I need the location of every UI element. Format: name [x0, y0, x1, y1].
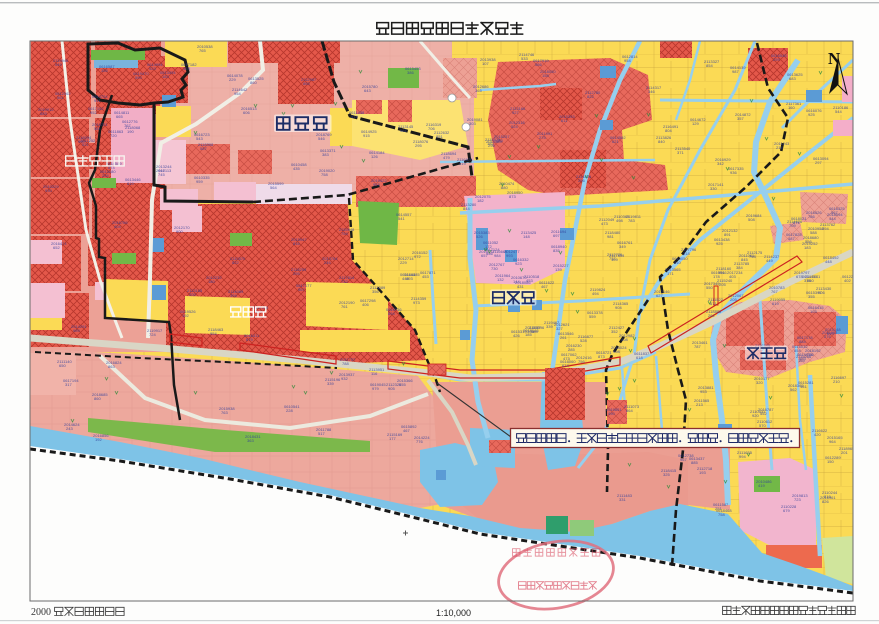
svg-text:549: 549 [55, 62, 62, 67]
svg-text:126: 126 [371, 154, 378, 159]
svg-text:776: 776 [416, 439, 423, 444]
svg-text:819: 819 [127, 181, 134, 186]
svg-text:448: 448 [825, 259, 832, 264]
svg-text:275: 275 [539, 135, 546, 140]
svg-text:533: 533 [521, 56, 528, 61]
svg-text:979: 979 [372, 386, 379, 391]
svg-text:259: 259 [773, 57, 780, 62]
svg-text:788: 788 [342, 361, 349, 366]
svg-text:954: 954 [234, 91, 241, 96]
svg-text:201: 201 [841, 450, 848, 455]
svg-text:183: 183 [804, 245, 811, 250]
svg-text:550: 550 [706, 285, 713, 290]
svg-text:363: 363 [247, 438, 254, 443]
svg-text:490: 490 [608, 411, 615, 416]
svg-text:679: 679 [783, 508, 790, 513]
svg-text:765: 765 [199, 48, 206, 53]
svg-text:941: 941 [94, 98, 101, 103]
svg-text:587: 587 [200, 146, 207, 151]
svg-text:325: 325 [663, 472, 670, 477]
svg-text:925: 925 [808, 112, 815, 117]
svg-text:923: 923 [515, 261, 522, 266]
svg-text:555: 555 [399, 382, 406, 387]
svg-text:444: 444 [829, 216, 836, 221]
svg-text:180: 180 [208, 279, 215, 284]
svg-text:590: 590 [135, 75, 142, 80]
svg-text:581: 581 [94, 126, 101, 131]
svg-text:804: 804 [665, 128, 672, 133]
svg-text:178: 178 [713, 274, 720, 279]
svg-text:317: 317 [65, 382, 72, 387]
svg-text:920: 920 [752, 413, 759, 418]
svg-text:479: 479 [443, 155, 450, 160]
svg-text:566: 566 [535, 62, 542, 67]
svg-text:210: 210 [833, 379, 840, 384]
svg-text:183: 183 [162, 74, 169, 79]
svg-text:218: 218 [776, 145, 783, 150]
svg-text:697: 697 [553, 233, 560, 238]
svg-text:330: 330 [710, 186, 717, 191]
svg-text:228: 228 [286, 408, 293, 413]
svg-text:192: 192 [182, 313, 189, 318]
svg-text:229: 229 [400, 260, 407, 265]
svg-text:925: 925 [716, 241, 723, 246]
svg-text:756: 756 [578, 359, 585, 364]
svg-text:989: 989 [73, 328, 80, 333]
svg-text:303: 303 [469, 121, 476, 126]
svg-text:205: 205 [730, 297, 737, 302]
svg-text:952: 952 [90, 110, 97, 115]
svg-text:402: 402 [844, 278, 851, 283]
svg-text:261: 261 [560, 335, 567, 340]
svg-text:435: 435 [293, 166, 300, 171]
svg-text:559: 559 [589, 314, 596, 319]
svg-text:748: 748 [749, 254, 756, 259]
svg-text:953: 953 [700, 389, 707, 394]
svg-text:927: 927 [512, 110, 519, 115]
svg-text:103: 103 [810, 309, 817, 314]
svg-text:116: 116 [371, 371, 378, 376]
svg-text:467: 467 [541, 284, 548, 289]
svg-text:678: 678 [796, 274, 803, 279]
svg-text:449: 449 [766, 258, 773, 263]
svg-text:885: 885 [691, 460, 698, 465]
svg-text:246: 246 [324, 260, 331, 265]
svg-text:906: 906 [818, 290, 825, 295]
svg-text:723: 723 [794, 497, 801, 502]
svg-text:873: 873 [598, 354, 605, 359]
svg-text:193: 193 [699, 470, 706, 475]
svg-text:139: 139 [555, 267, 562, 272]
svg-text:171: 171 [667, 271, 674, 276]
svg-text:383: 383 [322, 152, 329, 157]
svg-text:355: 355 [808, 294, 815, 299]
svg-text:541: 541 [398, 216, 405, 221]
svg-text:262: 262 [708, 313, 715, 318]
svg-text:349: 349 [619, 244, 626, 249]
svg-text:339: 339 [546, 324, 553, 329]
svg-text:730: 730 [491, 266, 498, 271]
svg-text:724: 724 [149, 332, 156, 337]
svg-text:426: 426 [513, 333, 520, 338]
svg-text:182: 182 [477, 198, 484, 203]
svg-text:107: 107 [482, 61, 489, 66]
svg-text:745: 745 [158, 172, 165, 177]
svg-text:356: 356 [101, 68, 108, 73]
svg-text:320: 320 [756, 380, 763, 385]
svg-text:786: 786 [807, 352, 814, 357]
svg-text:994: 994 [739, 454, 746, 459]
svg-text:816: 816 [293, 241, 300, 246]
svg-text:614: 614 [562, 363, 569, 368]
svg-text:419: 419 [758, 483, 765, 488]
svg-text:960: 960 [807, 278, 814, 283]
svg-text:845: 845 [741, 257, 748, 262]
svg-text:860: 860 [250, 80, 257, 85]
svg-text:148: 148 [523, 234, 530, 239]
svg-text:129: 129 [692, 121, 699, 126]
svg-text:528: 528 [580, 338, 587, 343]
svg-text:200: 200 [189, 292, 196, 297]
svg-text:758: 758 [321, 172, 328, 177]
svg-text:561: 561 [400, 128, 407, 133]
svg-text:346: 346 [648, 89, 655, 94]
svg-text:618: 618 [636, 355, 643, 360]
svg-text:543: 543 [196, 136, 203, 141]
svg-text:356: 356 [372, 289, 379, 294]
svg-text:297: 297 [815, 160, 822, 165]
svg-text:987: 987 [732, 69, 739, 74]
svg-text:904: 904 [615, 305, 622, 310]
svg-text:822: 822 [232, 260, 239, 265]
svg-text:863: 863 [108, 364, 115, 369]
svg-text:213: 213 [696, 402, 703, 407]
svg-text:404: 404 [114, 224, 121, 229]
svg-text:420: 420 [814, 432, 821, 437]
svg-text:386: 386 [407, 70, 414, 75]
svg-text:693: 693 [406, 276, 413, 281]
svg-text:754: 754 [341, 231, 348, 236]
svg-text:526: 526 [476, 234, 483, 239]
svg-text:182: 182 [487, 141, 494, 146]
svg-text:243: 243 [66, 426, 73, 431]
svg-text:919: 919 [459, 161, 466, 166]
svg-text:930: 930 [45, 188, 52, 193]
svg-text:621: 621 [612, 139, 619, 144]
svg-text:873: 873 [509, 194, 516, 199]
svg-text:932: 932 [341, 376, 348, 381]
svg-text:510: 510 [674, 260, 681, 265]
svg-text:229: 229 [229, 77, 236, 82]
svg-text:205: 205 [719, 282, 726, 287]
svg-text:508: 508 [748, 217, 755, 222]
svg-text:N: N [828, 49, 841, 68]
svg-text:234: 234 [102, 173, 109, 178]
svg-text:952: 952 [373, 182, 380, 187]
svg-text:998: 998 [613, 349, 620, 354]
svg-text:296: 296 [578, 178, 585, 183]
svg-text:923: 923 [149, 66, 156, 71]
svg-text:967: 967 [680, 457, 687, 462]
svg-text:891: 891 [724, 232, 731, 237]
svg-text:959: 959 [196, 179, 203, 184]
svg-text:498: 498 [616, 218, 623, 223]
svg-text:864: 864 [626, 408, 633, 413]
svg-text:860: 860 [94, 396, 101, 401]
svg-text:611: 611 [561, 118, 568, 123]
svg-text:371: 371 [677, 150, 684, 155]
svg-text:493: 493 [799, 356, 806, 361]
svg-text:192: 192 [95, 437, 102, 442]
svg-text:720: 720 [110, 133, 117, 138]
svg-text:865: 865 [303, 81, 310, 86]
svg-text:546: 546 [318, 136, 325, 141]
svg-text:276: 276 [824, 334, 831, 339]
svg-text:544: 544 [835, 109, 842, 114]
svg-text:972: 972 [414, 254, 421, 259]
svg-text:936: 936 [730, 170, 737, 175]
svg-text:900: 900 [176, 229, 183, 234]
svg-text:786: 786 [808, 214, 815, 219]
svg-text:160: 160 [788, 105, 795, 110]
svg-text:467: 467 [403, 428, 410, 433]
svg-text:709: 709 [789, 223, 796, 228]
svg-text:352: 352 [611, 329, 618, 334]
svg-text:562: 562 [790, 387, 797, 392]
svg-text:2000: 2000 [31, 607, 51, 618]
svg-text:826: 826 [822, 499, 829, 504]
svg-text:915: 915 [363, 133, 370, 138]
svg-text:650: 650 [59, 363, 66, 368]
svg-text:840: 840 [658, 139, 665, 144]
svg-text:431: 431 [517, 284, 524, 289]
svg-text:767: 767 [771, 289, 778, 294]
svg-text:643: 643 [364, 88, 371, 93]
svg-text:851: 851 [436, 134, 443, 139]
svg-text:567: 567 [298, 287, 305, 292]
svg-text:990: 990 [78, 139, 85, 144]
svg-text:144: 144 [513, 279, 520, 284]
svg-text:732: 732 [341, 279, 348, 284]
svg-text:973: 973 [413, 300, 420, 305]
svg-text:177: 177 [389, 436, 396, 441]
svg-text:342: 342 [717, 161, 724, 166]
svg-text:981: 981 [607, 234, 614, 239]
svg-text:487: 487 [788, 236, 795, 241]
svg-text:295: 295 [415, 143, 422, 148]
svg-text:619: 619 [772, 301, 779, 306]
svg-text:822: 822 [587, 94, 594, 99]
svg-text:606: 606 [243, 110, 250, 115]
svg-text:132: 132 [497, 277, 504, 282]
svg-text:758: 758 [718, 512, 725, 517]
svg-text:318: 318 [683, 251, 690, 256]
svg-text:964: 964 [829, 439, 836, 444]
svg-text:894: 894 [388, 311, 395, 316]
svg-text:671: 671 [710, 301, 717, 306]
svg-text:652: 652 [53, 245, 60, 250]
svg-text:406: 406 [362, 302, 369, 307]
svg-text:954: 954 [210, 331, 217, 336]
svg-text:761: 761 [341, 304, 348, 309]
svg-text:984: 984 [494, 253, 501, 258]
svg-text:150: 150 [827, 459, 834, 464]
svg-text:883: 883 [40, 111, 47, 116]
svg-text:737: 737 [609, 256, 616, 261]
svg-text:561: 561 [57, 95, 64, 100]
svg-text:524: 524 [511, 124, 518, 129]
svg-text:657: 657 [481, 253, 488, 258]
svg-text:844: 844 [463, 206, 470, 211]
svg-text:190: 190 [127, 129, 134, 134]
svg-text:453: 453 [526, 278, 533, 283]
svg-text:665: 665 [116, 114, 123, 119]
svg-text:295: 295 [293, 271, 300, 276]
svg-text:327: 327 [556, 326, 563, 331]
svg-text:339: 339 [327, 381, 334, 386]
svg-text:679: 679 [246, 337, 253, 342]
svg-text:357: 357 [737, 116, 744, 121]
svg-text:1:10,000: 1:10,000 [436, 608, 471, 618]
svg-text:517: 517 [318, 431, 325, 436]
svg-text:158: 158 [542, 73, 549, 78]
svg-text:165: 165 [475, 88, 482, 93]
svg-text:954: 954 [624, 58, 631, 63]
svg-text:394: 394 [230, 293, 237, 298]
svg-text:473: 473 [601, 221, 608, 226]
svg-text:763: 763 [221, 410, 228, 415]
svg-text:331: 331 [619, 497, 626, 502]
svg-text:323: 323 [183, 66, 190, 71]
svg-text:564: 564 [270, 185, 277, 190]
svg-text:408: 408 [621, 337, 628, 342]
svg-text:161: 161 [800, 384, 807, 389]
svg-text:453: 453 [422, 274, 429, 279]
svg-text:787: 787 [694, 344, 701, 349]
svg-text:905: 905 [388, 386, 395, 391]
svg-text:683: 683 [789, 76, 796, 81]
svg-text:627: 627 [656, 293, 663, 298]
svg-text:494: 494 [592, 291, 599, 296]
svg-text:570: 570 [759, 423, 766, 428]
svg-text:251: 251 [715, 506, 722, 511]
svg-text:588: 588 [810, 230, 817, 235]
svg-text:514: 514 [351, 114, 358, 119]
svg-text:854: 854 [706, 63, 713, 68]
